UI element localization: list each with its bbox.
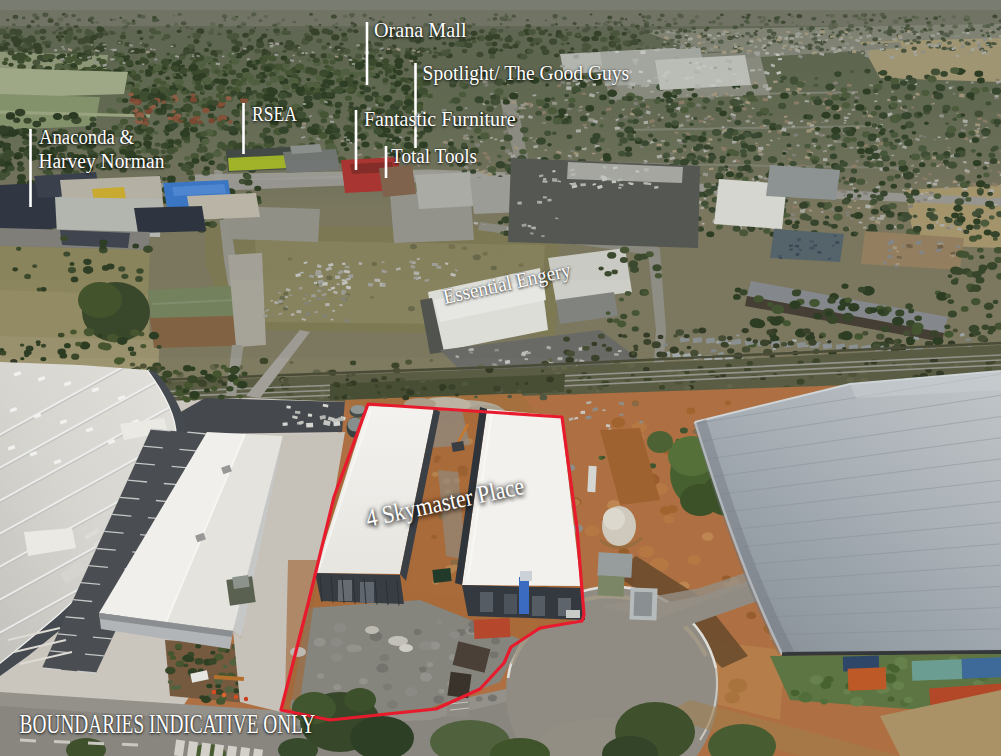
svg-text:Anaconda &: Anaconda &: [39, 126, 134, 148]
svg-text:Harvey Norman: Harvey Norman: [38, 150, 164, 173]
svg-text:RSEA: RSEA: [252, 103, 297, 125]
svg-text:Orana Mall: Orana Mall: [374, 18, 467, 42]
svg-text:Spotlight/ The Good Guys: Spotlight/ The Good Guys: [423, 61, 630, 85]
svg-text:Total Tools: Total Tools: [391, 144, 477, 168]
svg-text:BOUNDARIES INDICATIVE ONLY: BOUNDARIES INDICATIVE ONLY: [20, 709, 316, 739]
svg-text:Fantastic Furniture: Fantastic Furniture: [364, 107, 516, 131]
